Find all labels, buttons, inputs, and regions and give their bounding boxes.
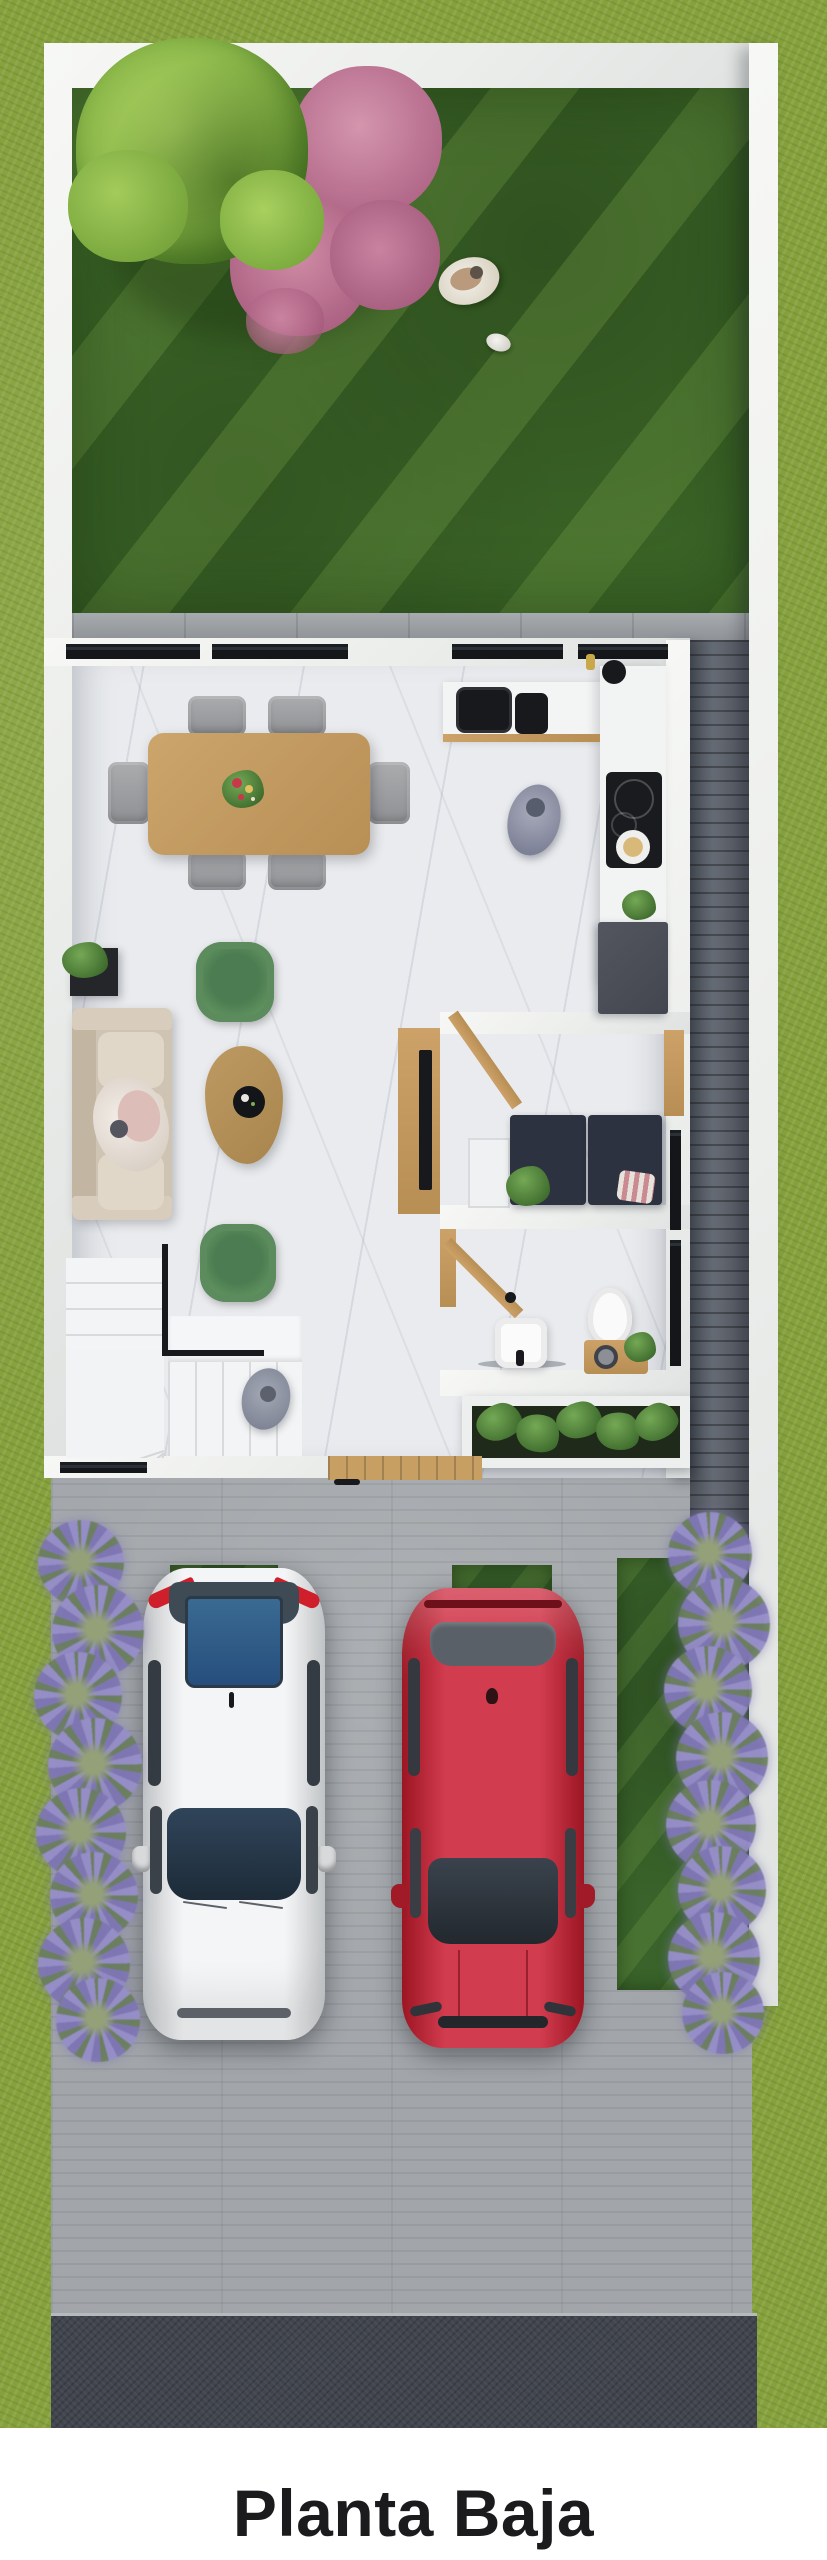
antenna: [229, 1692, 234, 1708]
side-window: [150, 1806, 162, 1894]
stand-plant: [62, 942, 108, 978]
white-car: [143, 1568, 325, 2040]
side-window: [148, 1660, 161, 1786]
floor-plan-render: Planta Baja: [0, 0, 827, 2560]
green-tree-canopy: [68, 150, 188, 262]
dining-chair: [268, 696, 326, 736]
island-cooktop: [515, 693, 548, 734]
window-strip: [212, 644, 348, 659]
entry-door-handle: [334, 1479, 360, 1485]
rear-window: [430, 1622, 556, 1666]
bath-plant: [624, 1332, 656, 1362]
rear-light-bar: [424, 1600, 562, 1608]
pink-tree-canopy: [330, 200, 440, 310]
person-on-lawn-head: [470, 266, 483, 279]
food-plate: [616, 830, 650, 864]
dining-chair: [108, 762, 150, 824]
patio-strip: [72, 613, 749, 640]
front-grille: [177, 2008, 291, 2018]
wiper: [183, 1901, 227, 1909]
winder-step-edge: [66, 1450, 164, 1458]
green-tree-canopy: [220, 170, 324, 270]
headlight: [543, 2001, 576, 2017]
windshield: [428, 1858, 558, 1944]
study-wood-post: [664, 1030, 684, 1116]
floor-plan-title: Planta Baja: [0, 2480, 827, 2546]
stair-railing-vertical: [162, 1244, 168, 1356]
bath-wall-front: [440, 1370, 690, 1396]
lavender-bush: [56, 1978, 140, 2062]
kitchen-cabinet: [598, 922, 668, 1014]
toilet: [588, 1288, 632, 1346]
side-mirror: [318, 1846, 336, 1872]
stair-railing-horizontal: [162, 1350, 264, 1356]
island-sink: [456, 687, 512, 733]
dining-chair: [188, 696, 246, 736]
red-car: [402, 1588, 584, 2048]
pink-tree-canopy: [246, 288, 324, 354]
side-window: [410, 1828, 421, 1918]
person-in-kitchen-head: [526, 798, 545, 817]
front-door-glass: [60, 1462, 147, 1473]
stairs-winders: [66, 1350, 164, 1458]
dining-chair: [368, 762, 410, 824]
study-wall-top: [440, 1012, 690, 1034]
lavender-bush: [682, 1972, 764, 2054]
side-path: [690, 640, 749, 1565]
front-grille: [438, 2016, 548, 2028]
desk-plant: [506, 1166, 550, 1206]
green-armchair: [196, 942, 274, 1022]
wiper: [239, 1901, 283, 1909]
side-window: [566, 1658, 578, 1776]
coffee-table-tray: [233, 1086, 265, 1118]
green-armchair: [200, 1224, 276, 1302]
tv-screen: [419, 1050, 432, 1190]
side-window: [307, 1660, 320, 1786]
side-mirror: [132, 1846, 150, 1872]
window-strip: [452, 644, 563, 659]
footer-band: Planta Baja: [0, 2428, 827, 2560]
side-window: [565, 1828, 576, 1918]
bath-clock: [594, 1345, 618, 1369]
window-strip: [670, 1240, 681, 1366]
window-strip: [670, 1130, 681, 1230]
side-mirror: [391, 1884, 409, 1908]
table-centerpiece: [222, 770, 264, 808]
hood-crease: [458, 1950, 460, 2016]
side-window: [408, 1658, 420, 1776]
shower-head: [505, 1292, 516, 1303]
stairs-upper-flight: [66, 1258, 164, 1350]
entry-deck: [328, 1456, 482, 1480]
side-window: [306, 1806, 318, 1894]
sink-faucet: [516, 1350, 524, 1366]
boundary-wall-right: [749, 43, 778, 2006]
desk-cushion: [616, 1170, 656, 1205]
study-wall-bottom: [440, 1205, 690, 1229]
study-shelf: [468, 1138, 510, 1208]
shark-fin-antenna: [486, 1688, 498, 1704]
sofa-armrest: [72, 1008, 172, 1030]
street: [51, 2313, 757, 2431]
dining-chair: [268, 850, 326, 890]
headlight: [409, 2001, 442, 2017]
windshield: [167, 1808, 301, 1900]
side-mirror: [577, 1884, 595, 1908]
kitchen-island-edge: [443, 734, 600, 742]
wall-faucet: [586, 654, 595, 670]
tray-decor: [241, 1094, 249, 1102]
centerpiece-flowers: [232, 778, 242, 788]
hood-crease: [526, 1950, 528, 2016]
window-strip: [66, 644, 200, 659]
dining-chair: [188, 850, 246, 890]
kitchen-plant: [622, 890, 656, 920]
person-on-stairs-head: [260, 1386, 276, 1402]
panoramic-sunroof: [185, 1596, 283, 1688]
person-on-sofa-head: [110, 1120, 128, 1138]
wall-sink: [602, 660, 626, 684]
